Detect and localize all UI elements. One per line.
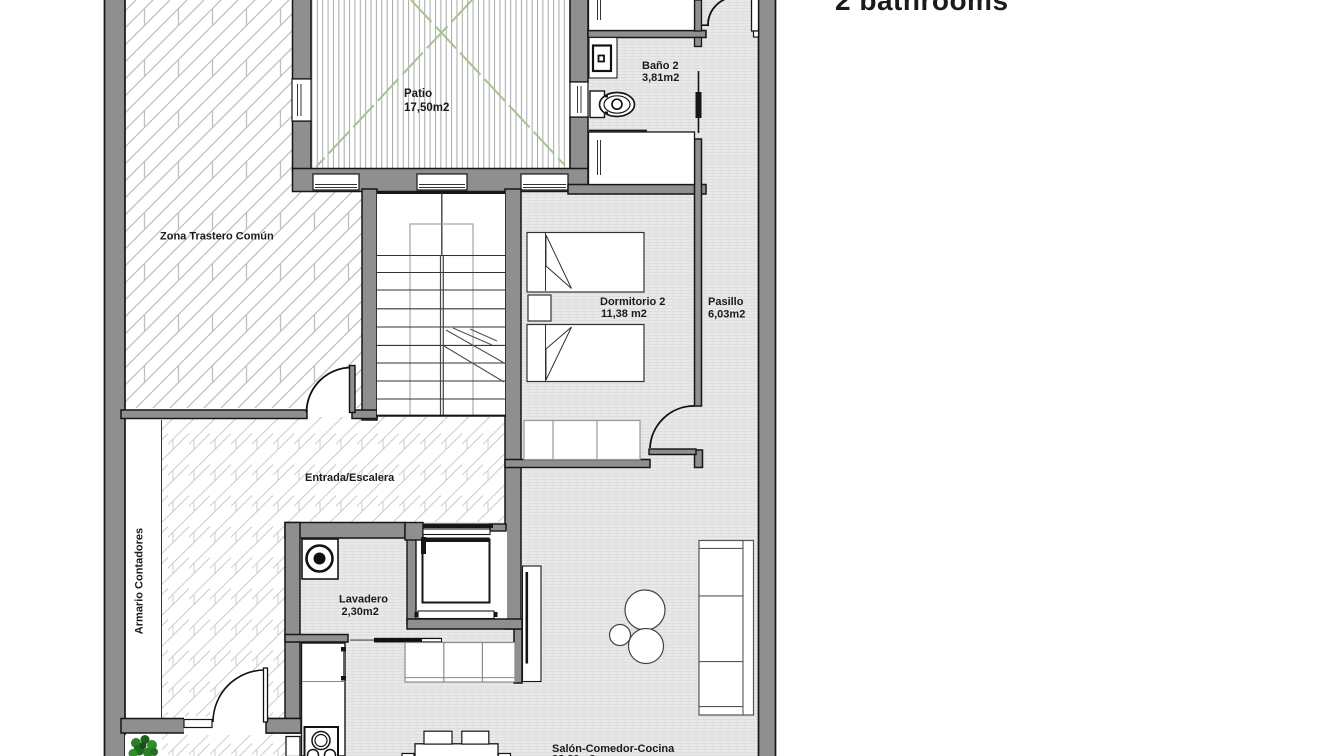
svg-text:6,03m2: 6,03m2 xyxy=(708,309,745,321)
svg-text:Entrada/Escalera: Entrada/Escalera xyxy=(305,472,395,484)
svg-text:Dormitorio 2: Dormitorio 2 xyxy=(600,296,665,308)
svg-text:Baño 2: Baño 2 xyxy=(642,60,679,72)
svg-text:2,30m2: 2,30m2 xyxy=(342,606,379,618)
svg-text:Lavadero: Lavadero xyxy=(339,594,388,606)
svg-text:Pasillo: Pasillo xyxy=(708,296,744,308)
svg-text:11,38 m2: 11,38 m2 xyxy=(601,308,647,320)
svg-text:Armario Contadores: Armario Contadores xyxy=(134,528,146,634)
svg-text:17,50m2: 17,50m2 xyxy=(404,102,449,114)
svg-text:Patio: Patio xyxy=(404,88,432,100)
svg-text:2 bathrooms: 2 bathrooms xyxy=(835,0,1009,16)
svg-text:Zona Trastero Común: Zona Trastero Común xyxy=(160,231,274,243)
svg-text:3,81m2: 3,81m2 xyxy=(642,72,679,84)
